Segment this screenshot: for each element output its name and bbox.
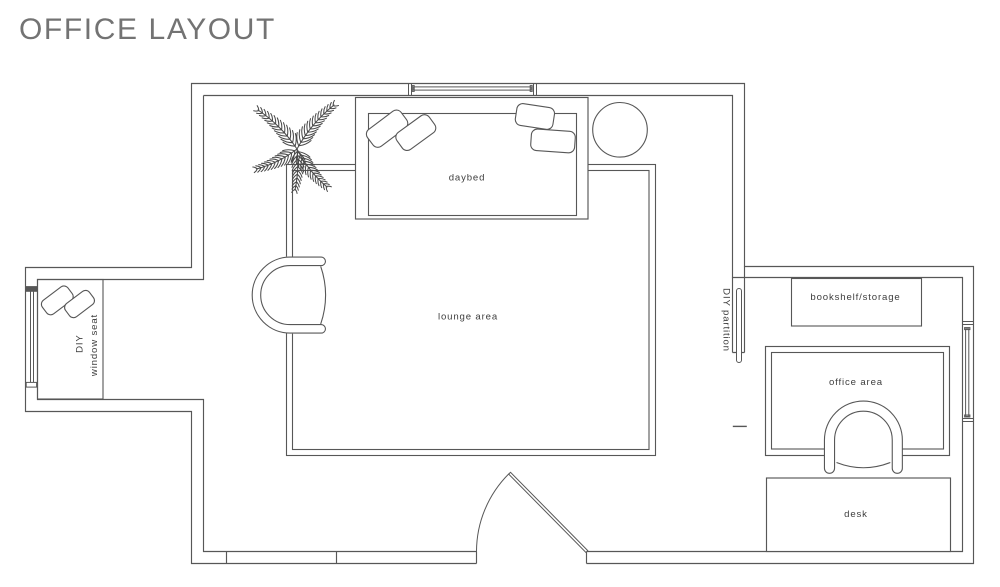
svg-text:office area: office area (829, 377, 883, 388)
svg-text:DIY: DIY (75, 334, 86, 353)
svg-text:DIY partition: DIY partition (720, 288, 731, 352)
svg-text:OFFICE LAYOUT: OFFICE LAYOUT (19, 13, 276, 46)
svg-text:lounge area: lounge area (438, 312, 498, 323)
svg-text:daybed: daybed (449, 173, 486, 184)
svg-text:bookshelf/storage: bookshelf/storage (810, 292, 900, 303)
svg-text:window seat: window seat (89, 314, 100, 377)
svg-text:desk: desk (844, 509, 868, 520)
